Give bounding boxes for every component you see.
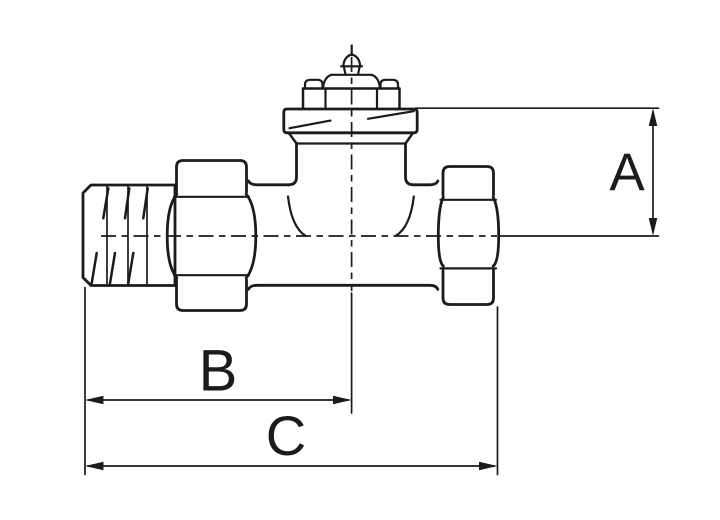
dimension-b: B xyxy=(85,288,352,475)
dimension-a: A xyxy=(416,108,659,236)
collar-thread-diagonal xyxy=(368,111,414,119)
dim-a-arrow-down xyxy=(649,218,658,236)
body-top-edge-right xyxy=(414,181,438,185)
collar-outline xyxy=(284,109,417,133)
thread-slash xyxy=(92,253,97,283)
threaded-tailpiece xyxy=(83,185,175,286)
nut-barrel-left-edge xyxy=(438,197,443,266)
neck-left-side xyxy=(289,144,297,185)
cap-bump-right xyxy=(381,80,399,89)
collar-taper-left xyxy=(289,133,297,144)
dimension-c: C xyxy=(85,307,498,475)
cap-bump-left xyxy=(305,80,323,89)
valve-seat-arc-left xyxy=(288,197,306,236)
stem-dome-side xyxy=(358,66,360,75)
tailpiece-outline xyxy=(83,185,175,286)
dim-c-arrow-left xyxy=(85,462,104,471)
nut-bottom-face xyxy=(177,280,247,311)
valve-seat-arc-right xyxy=(396,197,414,236)
collar-thread-diagonal xyxy=(290,121,331,129)
dim-b-arrow-right xyxy=(333,396,352,405)
dim-a-arrow-up xyxy=(649,108,658,126)
dimension-b-label: B xyxy=(199,339,238,404)
body-top-edge-left xyxy=(249,181,289,185)
valve-dimension-diagram: A B C xyxy=(0,0,720,520)
collar-taper-right xyxy=(406,133,414,144)
cap-shoulder-right-curve xyxy=(372,75,381,89)
stem-dome-side xyxy=(344,66,346,75)
dimension-a-label: A xyxy=(609,143,645,202)
dim-c-arrow-right xyxy=(479,462,498,471)
centerlines xyxy=(101,57,497,291)
thread-slash xyxy=(128,253,133,283)
nut-top-face xyxy=(177,161,247,193)
body-bottom-edge xyxy=(249,285,438,289)
dimension-c-label: C xyxy=(266,404,306,467)
nut-bottom-face xyxy=(443,271,494,305)
valve-bonnet xyxy=(284,109,417,185)
dim-b-arrow-left xyxy=(85,396,104,405)
thread-slash xyxy=(110,253,115,283)
nut-top-face xyxy=(443,167,494,196)
cap-shoulder-left-curve xyxy=(323,75,332,89)
neck-right-side xyxy=(406,144,414,185)
technical-drawing-canvas: A B C xyxy=(0,0,720,520)
nut-barrel-right-edge xyxy=(493,197,499,266)
